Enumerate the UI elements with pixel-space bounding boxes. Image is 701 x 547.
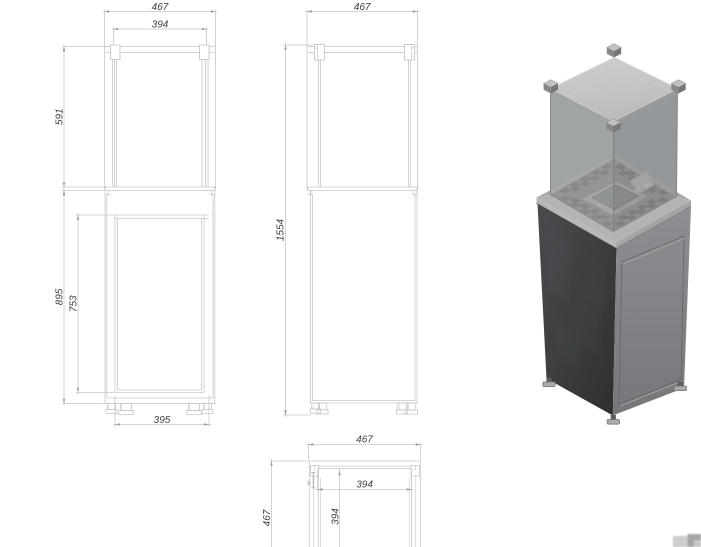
svg-text:395: 395	[154, 415, 171, 426]
svg-text:467: 467	[356, 435, 373, 446]
svg-text:1554: 1554	[276, 218, 287, 241]
svg-text:467: 467	[152, 2, 169, 13]
svg-text:36: 36	[307, 480, 312, 486]
svg-text:591: 591	[55, 108, 66, 125]
svg-text:467: 467	[354, 2, 371, 13]
svg-text:394: 394	[330, 508, 341, 525]
svg-text:394: 394	[356, 480, 373, 491]
svg-text:753: 753	[69, 295, 80, 312]
svg-text:467: 467	[262, 509, 273, 526]
svg-text:394: 394	[152, 20, 169, 31]
svg-text:895: 895	[55, 288, 66, 305]
